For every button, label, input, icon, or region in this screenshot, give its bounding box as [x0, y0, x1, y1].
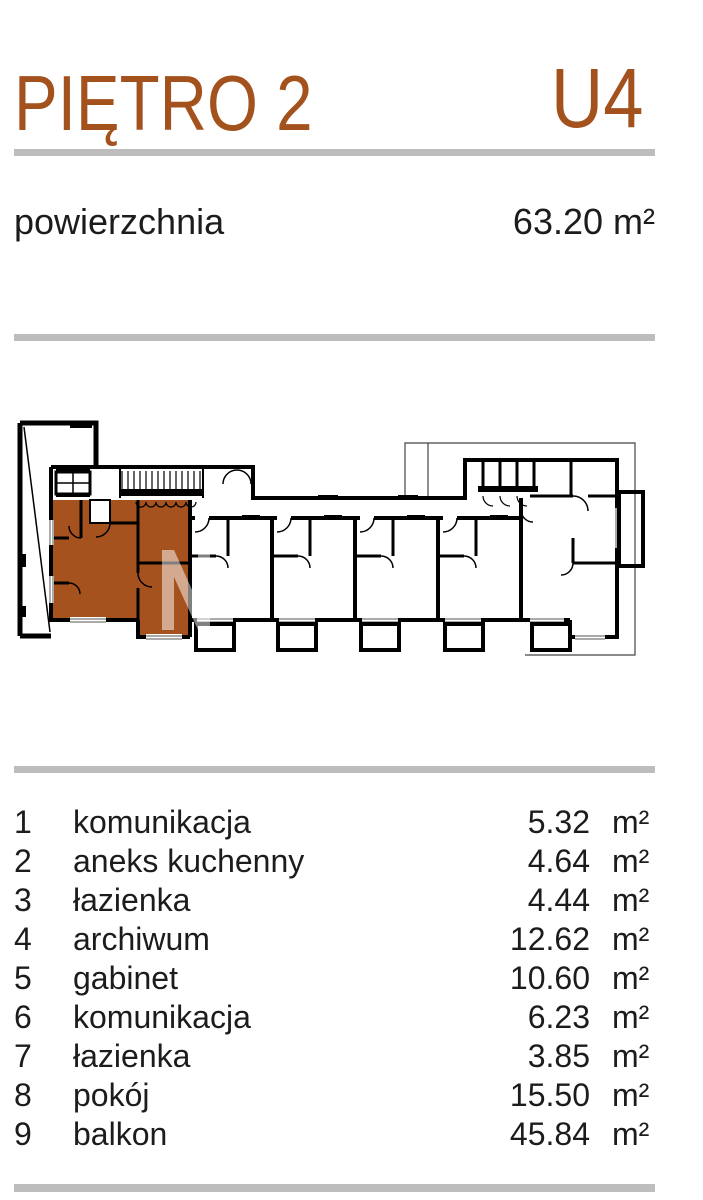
room-area-unit: m²	[612, 1076, 649, 1115]
room-area-unit: m²	[612, 881, 649, 920]
room-row: 6 komunikacja 6.23 m²	[0, 998, 703, 1037]
room-name: łazienka	[73, 881, 190, 920]
wall-tab	[21, 554, 26, 567]
divider-above-list	[14, 766, 655, 773]
area-label: powierzchnia	[14, 204, 224, 240]
unit-code: U4	[551, 56, 643, 140]
room-row: 4 archiwum 12.62 m²	[0, 920, 703, 959]
room-row: 5 gabinet 10.60 m²	[0, 959, 703, 998]
room-area: 6.23	[420, 998, 590, 1037]
divider-top	[14, 149, 655, 156]
floor-plan	[13, 418, 663, 663]
room-number: 7	[14, 1037, 32, 1076]
room-name: archiwum	[73, 920, 210, 959]
room-row: 2 aneks kuchenny 4.64 m²	[0, 842, 703, 881]
floor-plan-drawing	[13, 418, 663, 663]
room-number: 6	[14, 998, 32, 1037]
room-number: 4	[14, 920, 32, 959]
plan-notch	[90, 500, 110, 523]
room-area: 45.84	[420, 1115, 590, 1154]
wall-tick	[318, 495, 338, 500]
window-block	[56, 468, 90, 497]
room-area-unit: m²	[612, 1037, 649, 1076]
room-row: 8 pokój 15.50 m²	[0, 1076, 703, 1115]
room-number: 2	[14, 842, 32, 881]
wall-tick	[398, 495, 418, 500]
room-area-unit: m²	[612, 842, 649, 881]
room-name: komunikacja	[73, 803, 251, 842]
room-name: pokój	[73, 1076, 150, 1115]
terrace-tab	[70, 421, 92, 428]
divider-bottom	[14, 1184, 655, 1192]
middle-unit-walls	[190, 518, 476, 556]
room-area: 5.32	[420, 803, 590, 842]
page-title-floor: PIĘTRO 2	[14, 64, 313, 142]
room-name: komunikacja	[73, 998, 251, 1037]
room-area-unit: m²	[612, 959, 649, 998]
room-number: 1	[14, 803, 32, 842]
double-door-arcs	[223, 470, 251, 484]
room-row: 9 balkon 45.84 m²	[0, 1115, 703, 1154]
room-name: gabinet	[73, 959, 178, 998]
room-area: 3.85	[420, 1037, 590, 1076]
room-name: balkon	[73, 1115, 167, 1154]
room-number: 3	[14, 881, 32, 920]
room-row: 7 łazienka 3.85 m²	[0, 1037, 703, 1076]
room-area-unit: m²	[612, 998, 649, 1037]
area-value: 63.20 m²	[513, 204, 655, 240]
divider-above-plan	[14, 334, 655, 341]
room-name: łazienka	[73, 1037, 190, 1076]
room-row: 1 komunikacja 5.32 m²	[0, 803, 703, 842]
wall-tab	[21, 606, 26, 617]
rooms-list: 1 komunikacja 5.32 m² 2 aneks kuchenny 4…	[0, 803, 703, 1154]
room-area-unit: m²	[612, 803, 649, 842]
room-area: 4.44	[420, 881, 590, 920]
room-number: 5	[14, 959, 32, 998]
room-area-unit: m²	[612, 1115, 649, 1154]
room-area: 15.50	[420, 1076, 590, 1115]
room-area: 12.62	[420, 920, 590, 959]
room-row: 3 łazienka 4.44 m²	[0, 881, 703, 920]
room-number: 9	[14, 1115, 32, 1154]
room-area: 4.64	[420, 842, 590, 881]
room-area-unit: m²	[612, 920, 649, 959]
room-number: 8	[14, 1076, 32, 1115]
room-name: aneks kuchenny	[73, 842, 304, 881]
room-area: 10.60	[420, 959, 590, 998]
